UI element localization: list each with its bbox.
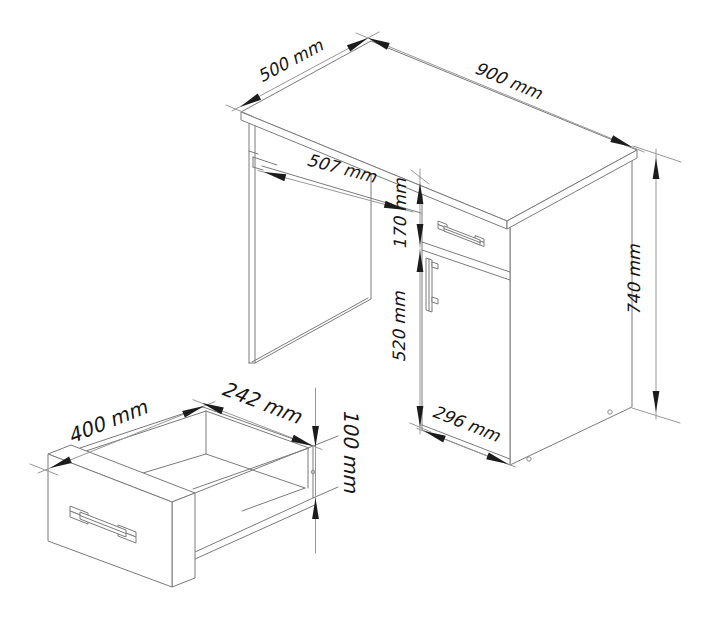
dim-label-door-height: 520 mm [389,291,409,362]
drawer-detail-view: 400 mm 242 mm 100 mm [30,376,363,587]
dim-label-drawer-height: 100 mm [339,409,363,493]
dim-label-drawer-front-height: 170 mm [390,178,410,249]
dim-desk-height: 740 mm [624,146,681,423]
dim-drawer-height: 100 mm [312,388,363,553]
screw-hole [527,457,531,461]
dim-label-drawer-depth: 400 mm [64,395,151,449]
technical-drawing-page: 500 mm 900 mm 507 mm 170 mm [0,0,707,619]
drawer-front-panel [48,445,195,587]
furniture-dimension-diagram: 500 mm 900 mm 507 mm 170 mm [0,0,707,619]
dim-label-desk-height: 740 mm [624,244,644,315]
dim-label-drawer-width: 242 mm [218,376,305,429]
